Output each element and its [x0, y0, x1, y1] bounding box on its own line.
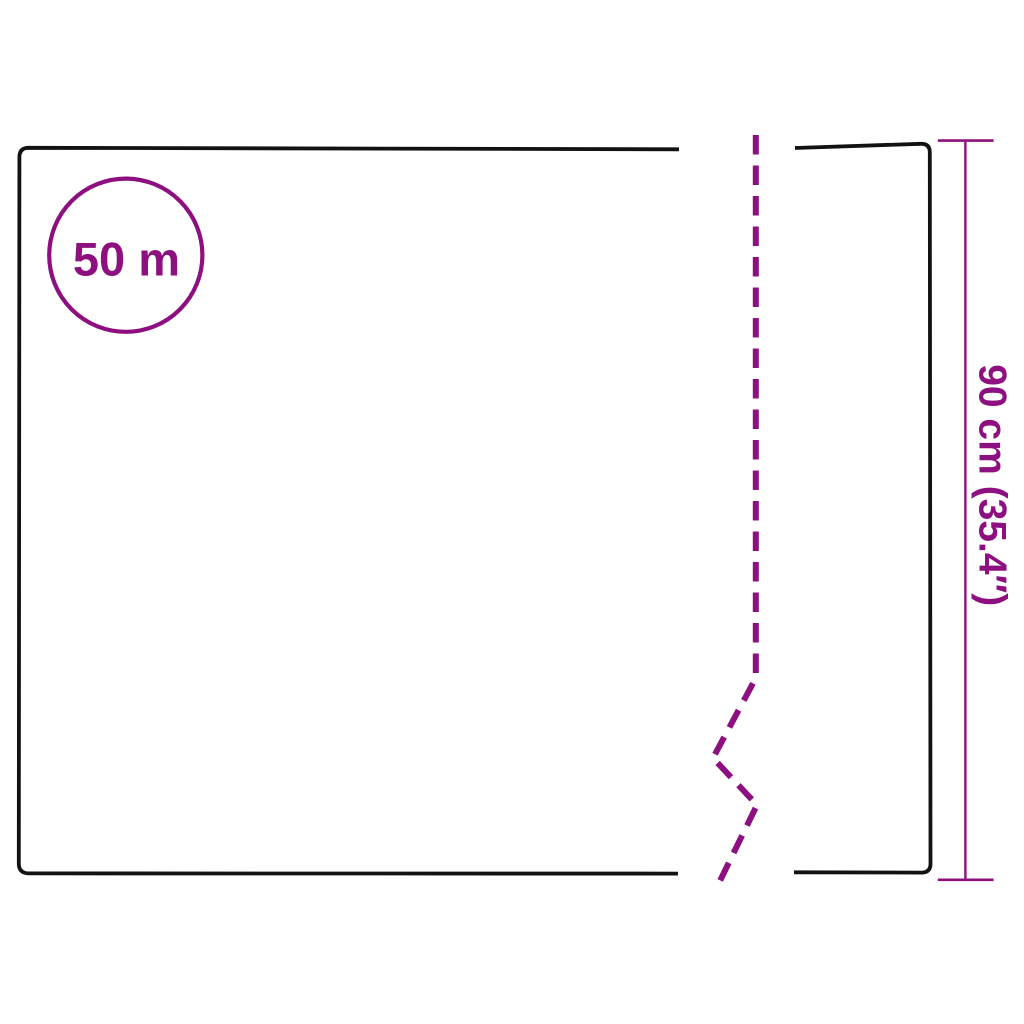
svg-text:90 cm (35.4″): 90 cm (35.4″): [971, 364, 1014, 606]
svg-text:50 m: 50 m: [73, 233, 180, 286]
